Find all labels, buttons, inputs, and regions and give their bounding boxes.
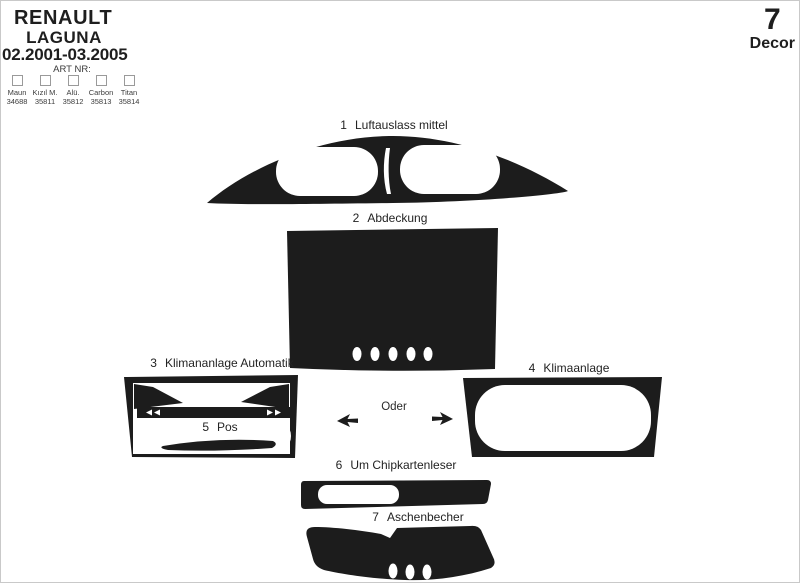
part-name: Aschenbecher xyxy=(387,510,464,524)
or-right-arrow-icon xyxy=(432,412,453,425)
part-name: Klimaanlage xyxy=(543,361,609,375)
part-2-label: 2Abdeckung xyxy=(353,211,428,225)
part-4-label: 4Klimaanlage xyxy=(529,361,610,375)
part-name: Um Chipkartenleser xyxy=(350,458,456,472)
part-name: Abdeckung xyxy=(367,211,427,225)
part-2-cover-shape xyxy=(287,228,498,371)
part-name: Pos xyxy=(217,420,238,434)
part-number: 6 xyxy=(336,458,343,472)
part-5-label: 5Pos xyxy=(202,420,237,434)
or-left-arrow-icon xyxy=(337,414,358,427)
part-3-label: 3Klimananlage Automatik xyxy=(150,356,293,370)
part-number: 3 xyxy=(150,356,157,370)
parts-diagram xyxy=(1,1,800,583)
part-name: Klimananlage Automatik xyxy=(165,356,294,370)
part-1-air-vent-shape xyxy=(207,136,568,204)
part-number: 1 xyxy=(340,118,347,132)
or-label: Oder xyxy=(381,401,407,413)
part-7-ashtray-shape xyxy=(306,526,494,580)
part-number: 5 xyxy=(202,420,209,434)
decor-parts-sheet: RENAULT LAGUNA 02.2001-03.2005 ART NR: M… xyxy=(0,0,800,583)
part-name: Luftauslass mittel xyxy=(355,118,448,132)
part-number: 7 xyxy=(372,510,379,524)
part-4-climate-shape xyxy=(463,377,662,457)
part-number: 2 xyxy=(353,211,360,225)
part-1-label: 1Luftauslass mittel xyxy=(340,118,447,132)
part-7-label: 7Aschenbecher xyxy=(372,510,463,524)
part-3-climate-auto-shape xyxy=(124,375,298,458)
part-6-label: 6Um Chipkartenleser xyxy=(336,458,457,472)
part-number: 4 xyxy=(529,361,536,375)
part-6-chip-card-reader-shape xyxy=(301,480,491,509)
